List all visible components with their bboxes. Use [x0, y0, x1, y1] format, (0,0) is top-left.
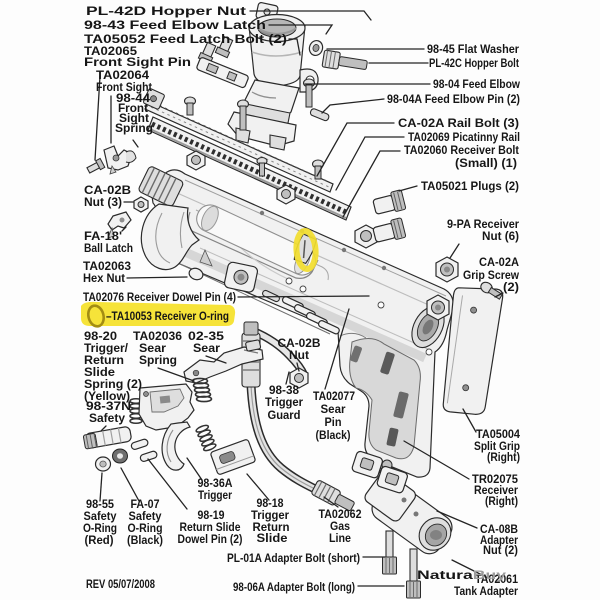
svg-text:Slide: Slide — [257, 531, 288, 545]
svg-text:98-45 Flat Washer: 98-45 Flat Washer — [427, 42, 519, 56]
svg-text:(Black): (Black) — [127, 533, 163, 547]
svg-text:–TA10053 Receiver O-ring: –TA10053 Receiver O-ring — [106, 309, 229, 323]
svg-text:REV 05/07/2008: REV 05/07/2008 — [86, 577, 155, 591]
svg-text:Nut (2): Nut (2) — [483, 543, 518, 557]
svg-text:PL-42D Hopper Nut: PL-42D Hopper Nut — [86, 4, 246, 18]
svg-text:98-04A Feed Elbow Pin (2): 98-04A Feed Elbow Pin (2) — [387, 92, 520, 106]
svg-text:TA05021 Plugs (2): TA05021 Plugs (2) — [421, 179, 519, 193]
svg-text:Dowel Pin (2): Dowel Pin (2) — [178, 532, 243, 546]
svg-text:Trigger: Trigger — [265, 395, 303, 409]
svg-text:(Right): (Right) — [485, 494, 518, 508]
svg-text:98-06A Adapter Bolt (long): 98-06A Adapter Bolt (long) — [233, 580, 355, 594]
svg-text:Hex Nut: Hex Nut — [83, 271, 125, 285]
svg-text:(2): (2) — [503, 280, 519, 294]
svg-text:Sear: Sear — [321, 402, 346, 416]
svg-text:TA02060 Receiver Bolt: TA02060 Receiver Bolt — [404, 143, 519, 157]
svg-text:CA-02A Rail Bolt (3): CA-02A Rail Bolt (3) — [398, 116, 519, 130]
svg-text:98-04 Feed Elbow: 98-04 Feed Elbow — [433, 77, 521, 91]
svg-text:(Right): (Right) — [487, 450, 520, 464]
svg-text:Nut (3): Nut (3) — [84, 195, 122, 209]
svg-text:TA02077: TA02077 — [313, 389, 355, 403]
svg-text:(Red): (Red) — [85, 533, 114, 547]
svg-text:PL-01A Adapter Bolt (short): PL-01A Adapter Bolt (short) — [227, 551, 360, 565]
svg-text:Pin: Pin — [325, 415, 342, 429]
svg-text:Spring: Spring — [115, 121, 153, 135]
svg-text:Sear: Sear — [193, 341, 220, 355]
svg-text:CA-02A: CA-02A — [479, 255, 519, 269]
svg-text:Ball Latch: Ball Latch — [84, 241, 133, 255]
svg-text:TA02069 Picatinny Rail: TA02069 Picatinny Rail — [408, 130, 520, 144]
svg-text:Trigger: Trigger — [198, 488, 232, 502]
svg-text:Line: Line — [329, 531, 351, 545]
svg-text:TA02076 Receiver Dowel Pin (4): TA02076 Receiver Dowel Pin (4) — [83, 290, 236, 304]
svg-text:Safety: Safety — [89, 411, 125, 425]
svg-text:(Small) (1): (Small) (1) — [455, 156, 517, 170]
svg-text:Tank Adapter: Tank Adapter — [454, 584, 518, 598]
svg-text:Nut: Nut — [289, 348, 309, 362]
svg-text:Guard: Guard — [268, 408, 301, 422]
svg-text:(Black): (Black) — [316, 428, 351, 442]
svg-text:Spring: Spring — [139, 353, 177, 367]
svg-text:Nut (6): Nut (6) — [482, 229, 519, 243]
svg-text:PL-42C Hopper Bolt: PL-42C Hopper Bolt — [429, 56, 519, 70]
svg-text:Front Sight Pin: Front Sight Pin — [84, 55, 191, 69]
svg-text:NaturaBuy: NaturaBuy — [417, 568, 506, 582]
svg-text:98-43 Feed Elbow Latch: 98-43 Feed Elbow Latch — [84, 18, 266, 32]
